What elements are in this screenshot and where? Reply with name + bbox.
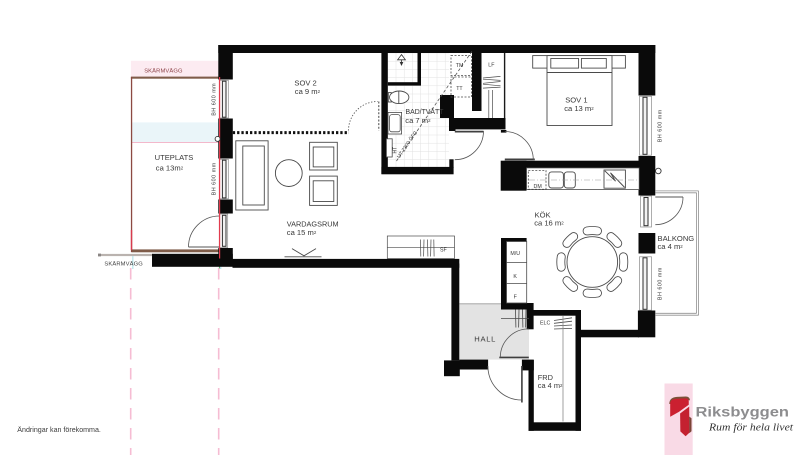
svg-text:TM: TM	[456, 63, 464, 69]
svg-text:ca 4 m2: ca 4 m2	[658, 242, 684, 251]
svg-text:TT: TT	[456, 86, 463, 92]
svg-text:ca 13 m2: ca 13 m2	[564, 104, 594, 113]
svg-text:BH 600 mm: BH 600 mm	[657, 267, 663, 300]
svg-text:UTEPLATS: UTEPLATS	[155, 153, 194, 162]
svg-text:Rum för hela livet: Rum för hela livet	[708, 423, 794, 434]
svg-text:BH 600 mm: BH 600 mm	[658, 109, 664, 142]
svg-text:BH 600 mm: BH 600 mm	[211, 162, 217, 195]
svg-text:DM: DM	[534, 184, 542, 190]
svg-text:ca 15 m2: ca 15 m2	[287, 228, 317, 237]
svg-text:ca 16 m2: ca 16 m2	[534, 218, 564, 227]
svg-text:ca 4 m2: ca 4 m2	[538, 381, 563, 390]
svg-text:LF: LF	[488, 63, 495, 69]
svg-text:HALL: HALL	[474, 334, 496, 343]
svg-text:Riksbyggen: Riksbyggen	[696, 405, 790, 420]
svg-text:ELC: ELC	[540, 320, 550, 326]
svg-text:ca 9 m2: ca 9 m2	[295, 87, 321, 96]
svg-text:Ändringar kan förekomma.: Ändringar kan förekomma.	[17, 426, 101, 434]
svg-text:ca 13m2: ca 13m2	[156, 164, 184, 173]
svg-text:K: K	[513, 274, 517, 280]
svg-text:M/U: M/U	[510, 251, 520, 257]
svg-text:SKÄRMVÄGG: SKÄRMVÄGG	[144, 67, 183, 74]
svg-text:SF: SF	[440, 248, 448, 254]
svg-text:BH 600 mm: BH 600 mm	[211, 83, 217, 116]
svg-text:BAD/TVÄTT: BAD/TVÄTT	[406, 108, 445, 116]
svg-text:ca 7 m2: ca 7 m2	[405, 116, 431, 125]
svg-text:SKÄRMVÄGG: SKÄRMVÄGG	[104, 260, 143, 267]
